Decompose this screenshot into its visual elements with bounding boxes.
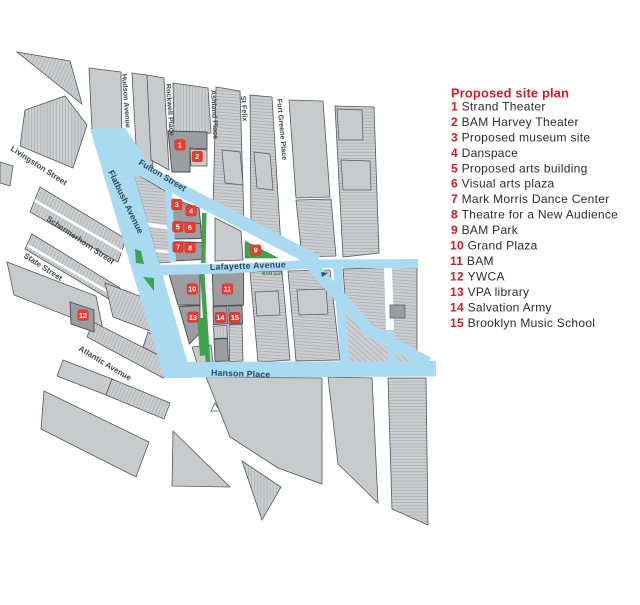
svg-text:3: 3 <box>175 200 179 209</box>
svg-text:11: 11 <box>224 285 232 294</box>
svg-text:2: 2 <box>195 152 199 161</box>
svg-text:9 BAM Park: 9 BAM Park <box>451 223 519 237</box>
svg-text:11 BAM: 11 BAM <box>450 254 494 268</box>
svg-text:Proposed site plan: Proposed site plan <box>451 86 569 101</box>
svg-text:8 Theatre for a New Audience: 8 Theatre for a New Audience <box>451 208 618 222</box>
svg-text:6: 6 <box>188 223 192 232</box>
svg-text:BAM park: BAM park <box>262 271 284 276</box>
svg-text:8: 8 <box>188 243 192 252</box>
svg-text:13: 13 <box>189 313 197 322</box>
svg-text:1 Strand Theater: 1 Strand Theater <box>451 100 546 114</box>
svg-text:4: 4 <box>189 206 193 215</box>
svg-text:13 VPA library: 13 VPA library <box>450 285 529 299</box>
svg-text:5 Proposed arts building: 5 Proposed arts building <box>451 161 588 175</box>
svg-text:9: 9 <box>254 246 258 255</box>
svg-text:5: 5 <box>176 222 180 231</box>
svg-text:14: 14 <box>216 313 224 322</box>
svg-text:1: 1 <box>178 141 182 150</box>
svg-text:3 Proposed museum site: 3 Proposed museum site <box>451 130 590 144</box>
svg-text:4 Danspace: 4 Danspace <box>451 146 518 160</box>
svg-text:2 BAM Harvey Theater: 2 BAM Harvey Theater <box>451 115 579 129</box>
svg-text:12: 12 <box>79 311 87 320</box>
svg-text:Hanson Place: Hanson Place <box>211 368 271 380</box>
svg-text:7: 7 <box>176 243 180 252</box>
svg-text:14 Salvation Army: 14 Salvation Army <box>450 300 552 314</box>
svg-text:10 Grand Plaza: 10 Grand Plaza <box>450 239 538 253</box>
svg-text:7 Mark Morris Dance Center: 7 Mark Morris Dance Center <box>451 192 610 206</box>
svg-text:10: 10 <box>188 285 196 294</box>
svg-text:15: 15 <box>231 313 239 322</box>
svg-text:St Felix: St Felix <box>239 96 250 122</box>
svg-text:12 YWCA: 12 YWCA <box>450 269 505 283</box>
svg-text:6 Visual arts plaza: 6 Visual arts plaza <box>451 177 555 191</box>
svg-text:15 Brooklyn Music School: 15 Brooklyn Music School <box>450 316 595 330</box>
